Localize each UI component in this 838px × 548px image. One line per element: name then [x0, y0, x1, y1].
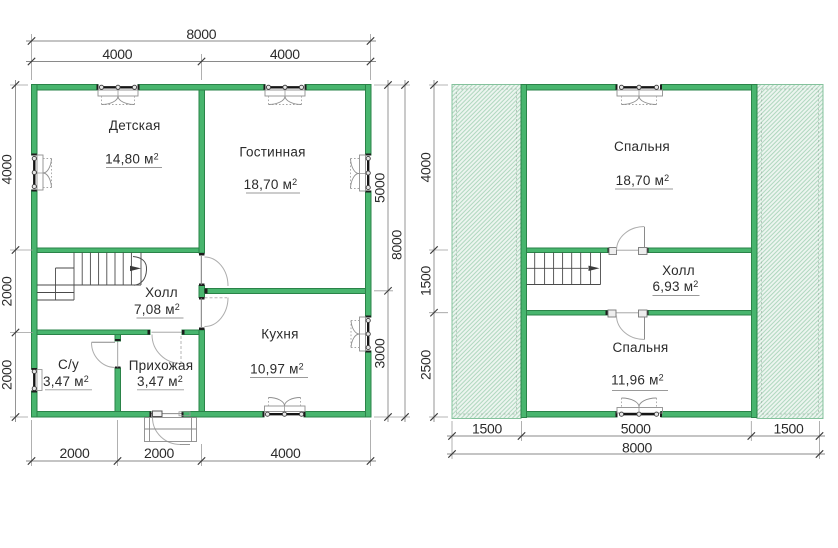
svg-text:18,70 м2: 18,70 м2	[616, 173, 670, 188]
svg-text:1500: 1500	[472, 421, 502, 437]
svg-text:1500: 1500	[774, 421, 804, 437]
svg-text:С/у: С/у	[58, 357, 79, 372]
svg-text:14,80 м2: 14,80 м2	[105, 152, 159, 167]
svg-text:3,47 м2: 3,47 м2	[137, 374, 183, 389]
svg-text:Спальня: Спальня	[613, 340, 669, 355]
svg-text:5000: 5000	[621, 421, 651, 437]
svg-text:4000: 4000	[102, 46, 132, 62]
svg-text:2000: 2000	[0, 360, 15, 390]
svg-text:4000: 4000	[271, 445, 301, 461]
svg-text:7,08 м2: 7,08 м2	[134, 302, 180, 317]
svg-text:10,97 м2: 10,97 м2	[250, 361, 304, 376]
svg-text:18,70 м2: 18,70 м2	[244, 177, 298, 192]
svg-text:Гостинная: Гостинная	[239, 144, 305, 159]
svg-text:Спальня: Спальня	[614, 139, 670, 154]
svg-text:2500: 2500	[418, 350, 434, 380]
svg-text:2000: 2000	[0, 276, 15, 306]
svg-text:3,47 м2: 3,47 м2	[43, 374, 89, 389]
svg-text:4000: 4000	[0, 154, 15, 184]
svg-text:8000: 8000	[186, 26, 216, 42]
svg-text:Прихожая: Прихожая	[129, 358, 194, 373]
svg-text:1500: 1500	[418, 266, 434, 296]
svg-text:Кухня: Кухня	[261, 326, 298, 341]
svg-text:Холл: Холл	[662, 263, 695, 278]
svg-text:4000: 4000	[270, 46, 300, 62]
svg-text:Детская: Детская	[109, 118, 161, 133]
svg-text:2000: 2000	[60, 445, 90, 461]
svg-text:8000: 8000	[389, 230, 405, 260]
svg-text:11,96 м2: 11,96 м2	[611, 373, 664, 388]
svg-text:4000: 4000	[418, 152, 434, 182]
svg-text:2000: 2000	[144, 445, 174, 461]
svg-text:Холл: Холл	[145, 285, 178, 300]
svg-text:8000: 8000	[622, 440, 652, 456]
svg-text:3000: 3000	[372, 338, 388, 368]
svg-text:6,93 м2: 6,93 м2	[652, 279, 698, 294]
svg-text:5000: 5000	[372, 173, 388, 203]
